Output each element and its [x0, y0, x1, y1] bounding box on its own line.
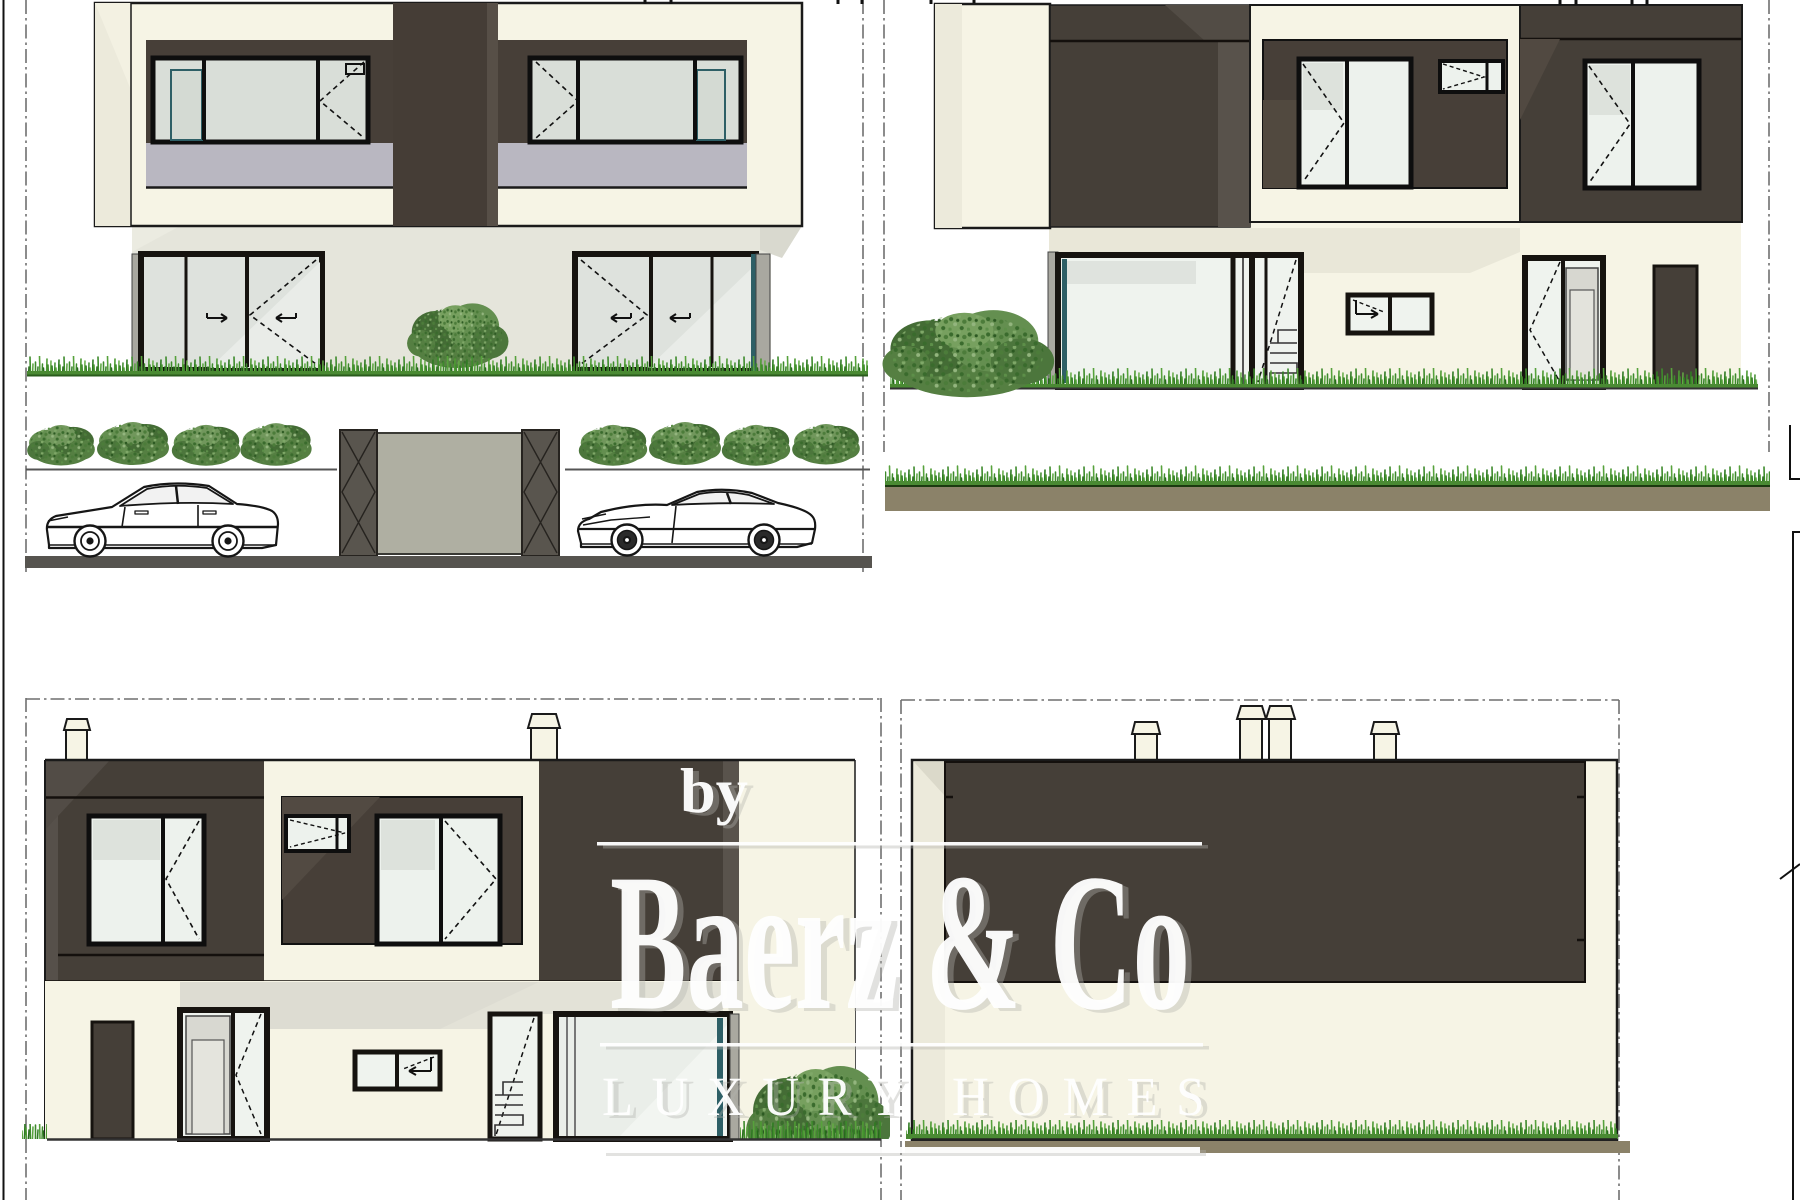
- svg-text:Baerz & Co: Baerz & Co: [610, 834, 1190, 1051]
- svg-text:by: by: [680, 755, 748, 826]
- svg-text:LUXURY HOMES: LUXURY HOMES: [602, 1066, 1223, 1127]
